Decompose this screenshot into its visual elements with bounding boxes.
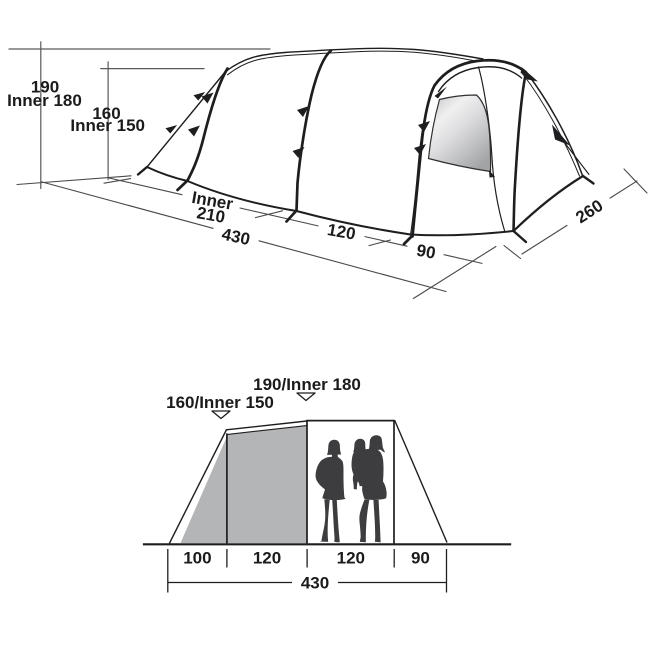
svg-text:Inner 180: Inner 180 bbox=[7, 91, 82, 110]
svg-text:90: 90 bbox=[415, 241, 437, 263]
svg-text:Inner 150: Inner 150 bbox=[70, 116, 145, 135]
svg-text:160/Inner 150: 160/Inner 150 bbox=[166, 393, 274, 412]
svg-text:100: 100 bbox=[183, 549, 211, 568]
svg-text:430: 430 bbox=[220, 225, 252, 249]
svg-text:90: 90 bbox=[411, 549, 430, 568]
svg-text:120: 120 bbox=[337, 549, 365, 568]
svg-text:430: 430 bbox=[301, 574, 329, 593]
svg-text:120: 120 bbox=[253, 549, 281, 568]
svg-text:210: 210 bbox=[195, 203, 226, 227]
svg-text:190/Inner 180: 190/Inner 180 bbox=[253, 375, 361, 394]
svg-text:260: 260 bbox=[572, 196, 606, 227]
